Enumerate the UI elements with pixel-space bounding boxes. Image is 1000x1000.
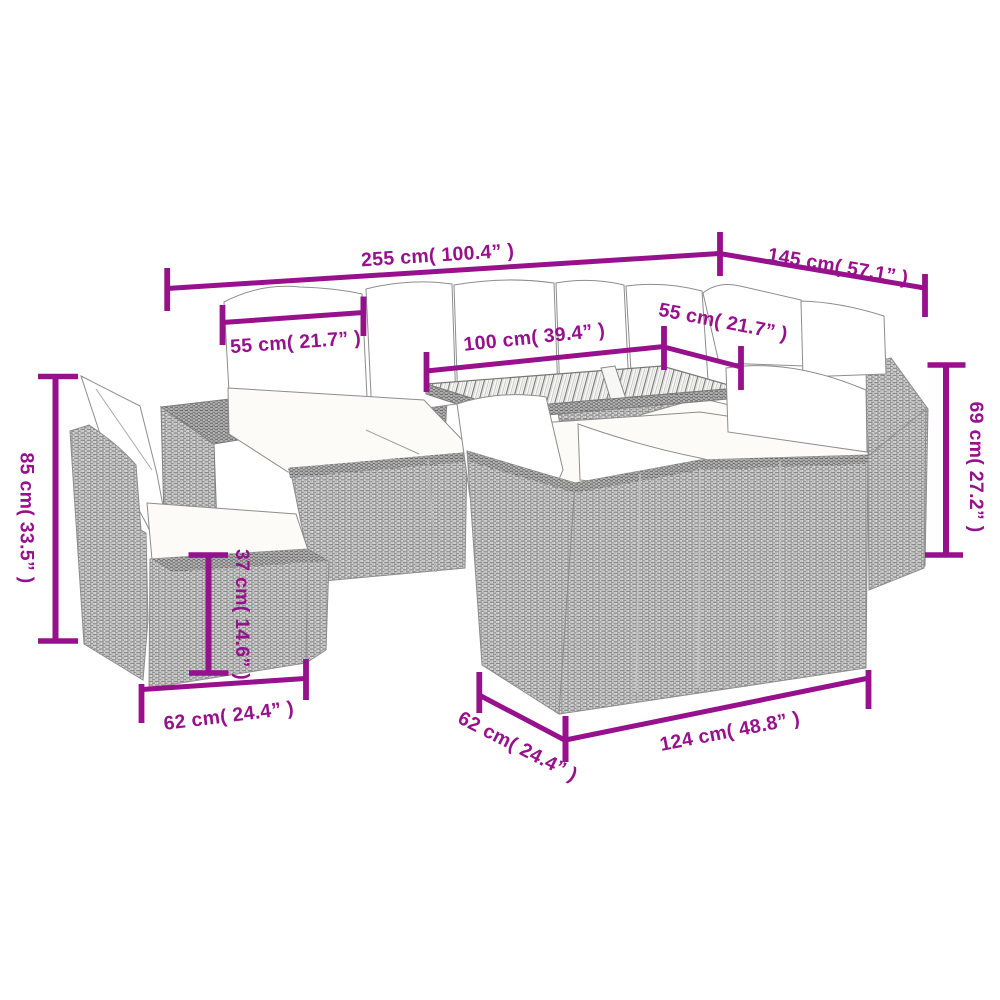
- svg-text:69 cm( 27.2” ): 69 cm( 27.2” ): [965, 401, 987, 532]
- svg-text:62 cm( 24.4” ): 62 cm( 24.4” ): [162, 697, 295, 735]
- svg-text:62 cm( 24.4” ): 62 cm( 24.4” ): [454, 707, 581, 786]
- svg-text:85 cm( 33.5” ): 85 cm( 33.5” ): [15, 452, 37, 583]
- svg-text:145 cm( 57.1” ): 145 cm( 57.1” ): [766, 244, 910, 289]
- svg-text:37 cm( 14.6” ): 37 cm( 14.6” ): [231, 549, 253, 680]
